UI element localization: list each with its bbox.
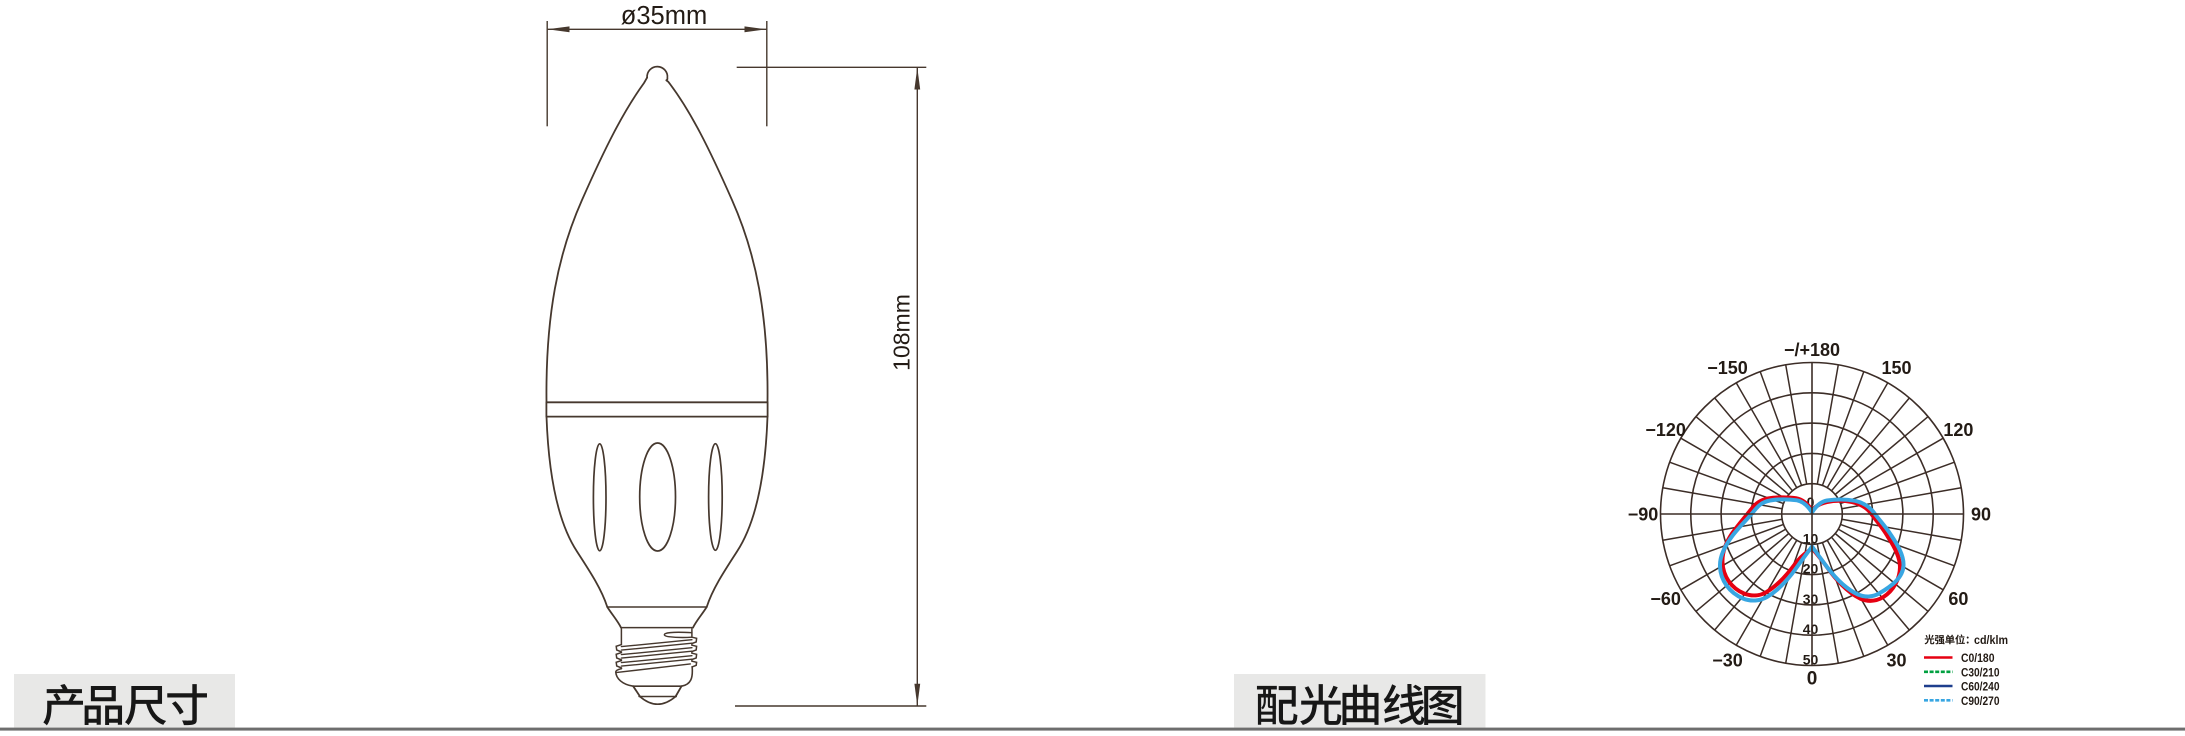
svg-text:0: 0	[1807, 669, 1818, 690]
svg-text:C60/240: C60/240	[1961, 680, 2000, 694]
svg-text:C90/270: C90/270	[1961, 694, 2000, 708]
svg-text:108mm: 108mm	[888, 294, 914, 371]
svg-text:−30: −30	[1712, 651, 1743, 671]
svg-text:cd/klm: cd/klm	[1974, 633, 2008, 647]
svg-text:ø35mm: ø35mm	[621, 2, 707, 30]
svg-text:10: 10	[1803, 530, 1819, 546]
svg-text:C30/210: C30/210	[1961, 665, 2000, 679]
svg-text:−60: −60	[1650, 589, 1681, 609]
svg-text:−90: −90	[1628, 504, 1659, 524]
svg-text:30: 30	[1886, 651, 1906, 671]
svg-text:20: 20	[1803, 561, 1819, 577]
svg-text:40: 40	[1803, 621, 1819, 637]
svg-text:−120: −120	[1645, 420, 1686, 440]
svg-text:C0/180: C0/180	[1961, 651, 1995, 665]
svg-text:−150: −150	[1707, 358, 1748, 378]
svg-text:−/+180: −/+180	[1784, 340, 1840, 360]
svg-text:90: 90	[1971, 504, 1991, 524]
svg-text:150: 150	[1881, 358, 1911, 378]
svg-text:60: 60	[1948, 589, 1968, 609]
svg-text:30: 30	[1803, 591, 1819, 607]
svg-text:120: 120	[1943, 420, 1973, 440]
svg-text:50: 50	[1803, 652, 1819, 668]
